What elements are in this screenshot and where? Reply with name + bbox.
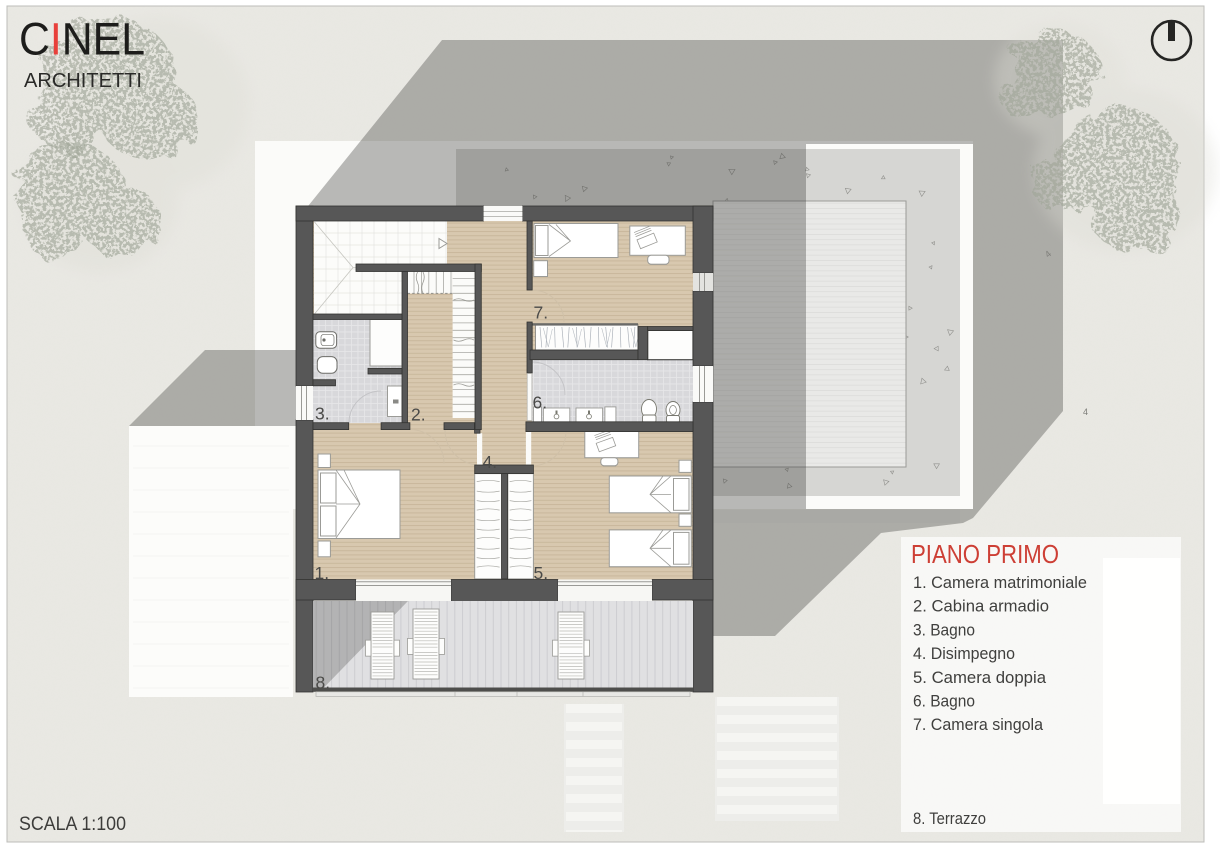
svg-text:ARCHITETTI: ARCHITETTI: [24, 69, 142, 92]
svg-text:7. Camera singola: 7. Camera singola: [913, 715, 1044, 734]
svg-text:CINEL: CINEL: [19, 14, 145, 65]
svg-text:1.: 1.: [315, 563, 330, 583]
svg-text:1. Camera matrimoniale: 1. Camera matrimoniale: [913, 573, 1087, 592]
svg-text:4: 4: [1083, 407, 1088, 417]
svg-text:PIANO PRIMO: PIANO PRIMO: [911, 539, 1059, 569]
svg-text:7.: 7.: [534, 303, 549, 323]
svg-text:5. Camera doppia: 5. Camera doppia: [913, 668, 1047, 687]
svg-text:5.: 5.: [534, 563, 549, 583]
svg-text:4.: 4.: [483, 452, 498, 472]
svg-text:6.: 6.: [533, 393, 548, 413]
svg-text:SCALA 1:100: SCALA 1:100: [19, 813, 126, 835]
svg-text:2.: 2.: [411, 405, 426, 425]
svg-text:3. Bagno: 3. Bagno: [913, 620, 975, 639]
svg-text:2. Cabina armadio: 2. Cabina armadio: [913, 597, 1049, 616]
svg-text:4. Disimpegno: 4. Disimpegno: [913, 644, 1015, 663]
svg-text:6. Bagno: 6. Bagno: [913, 692, 975, 711]
svg-text:3.: 3.: [315, 404, 330, 424]
svg-text:8.: 8.: [316, 673, 331, 693]
svg-text:8. Terrazzo: 8. Terrazzo: [913, 809, 986, 828]
